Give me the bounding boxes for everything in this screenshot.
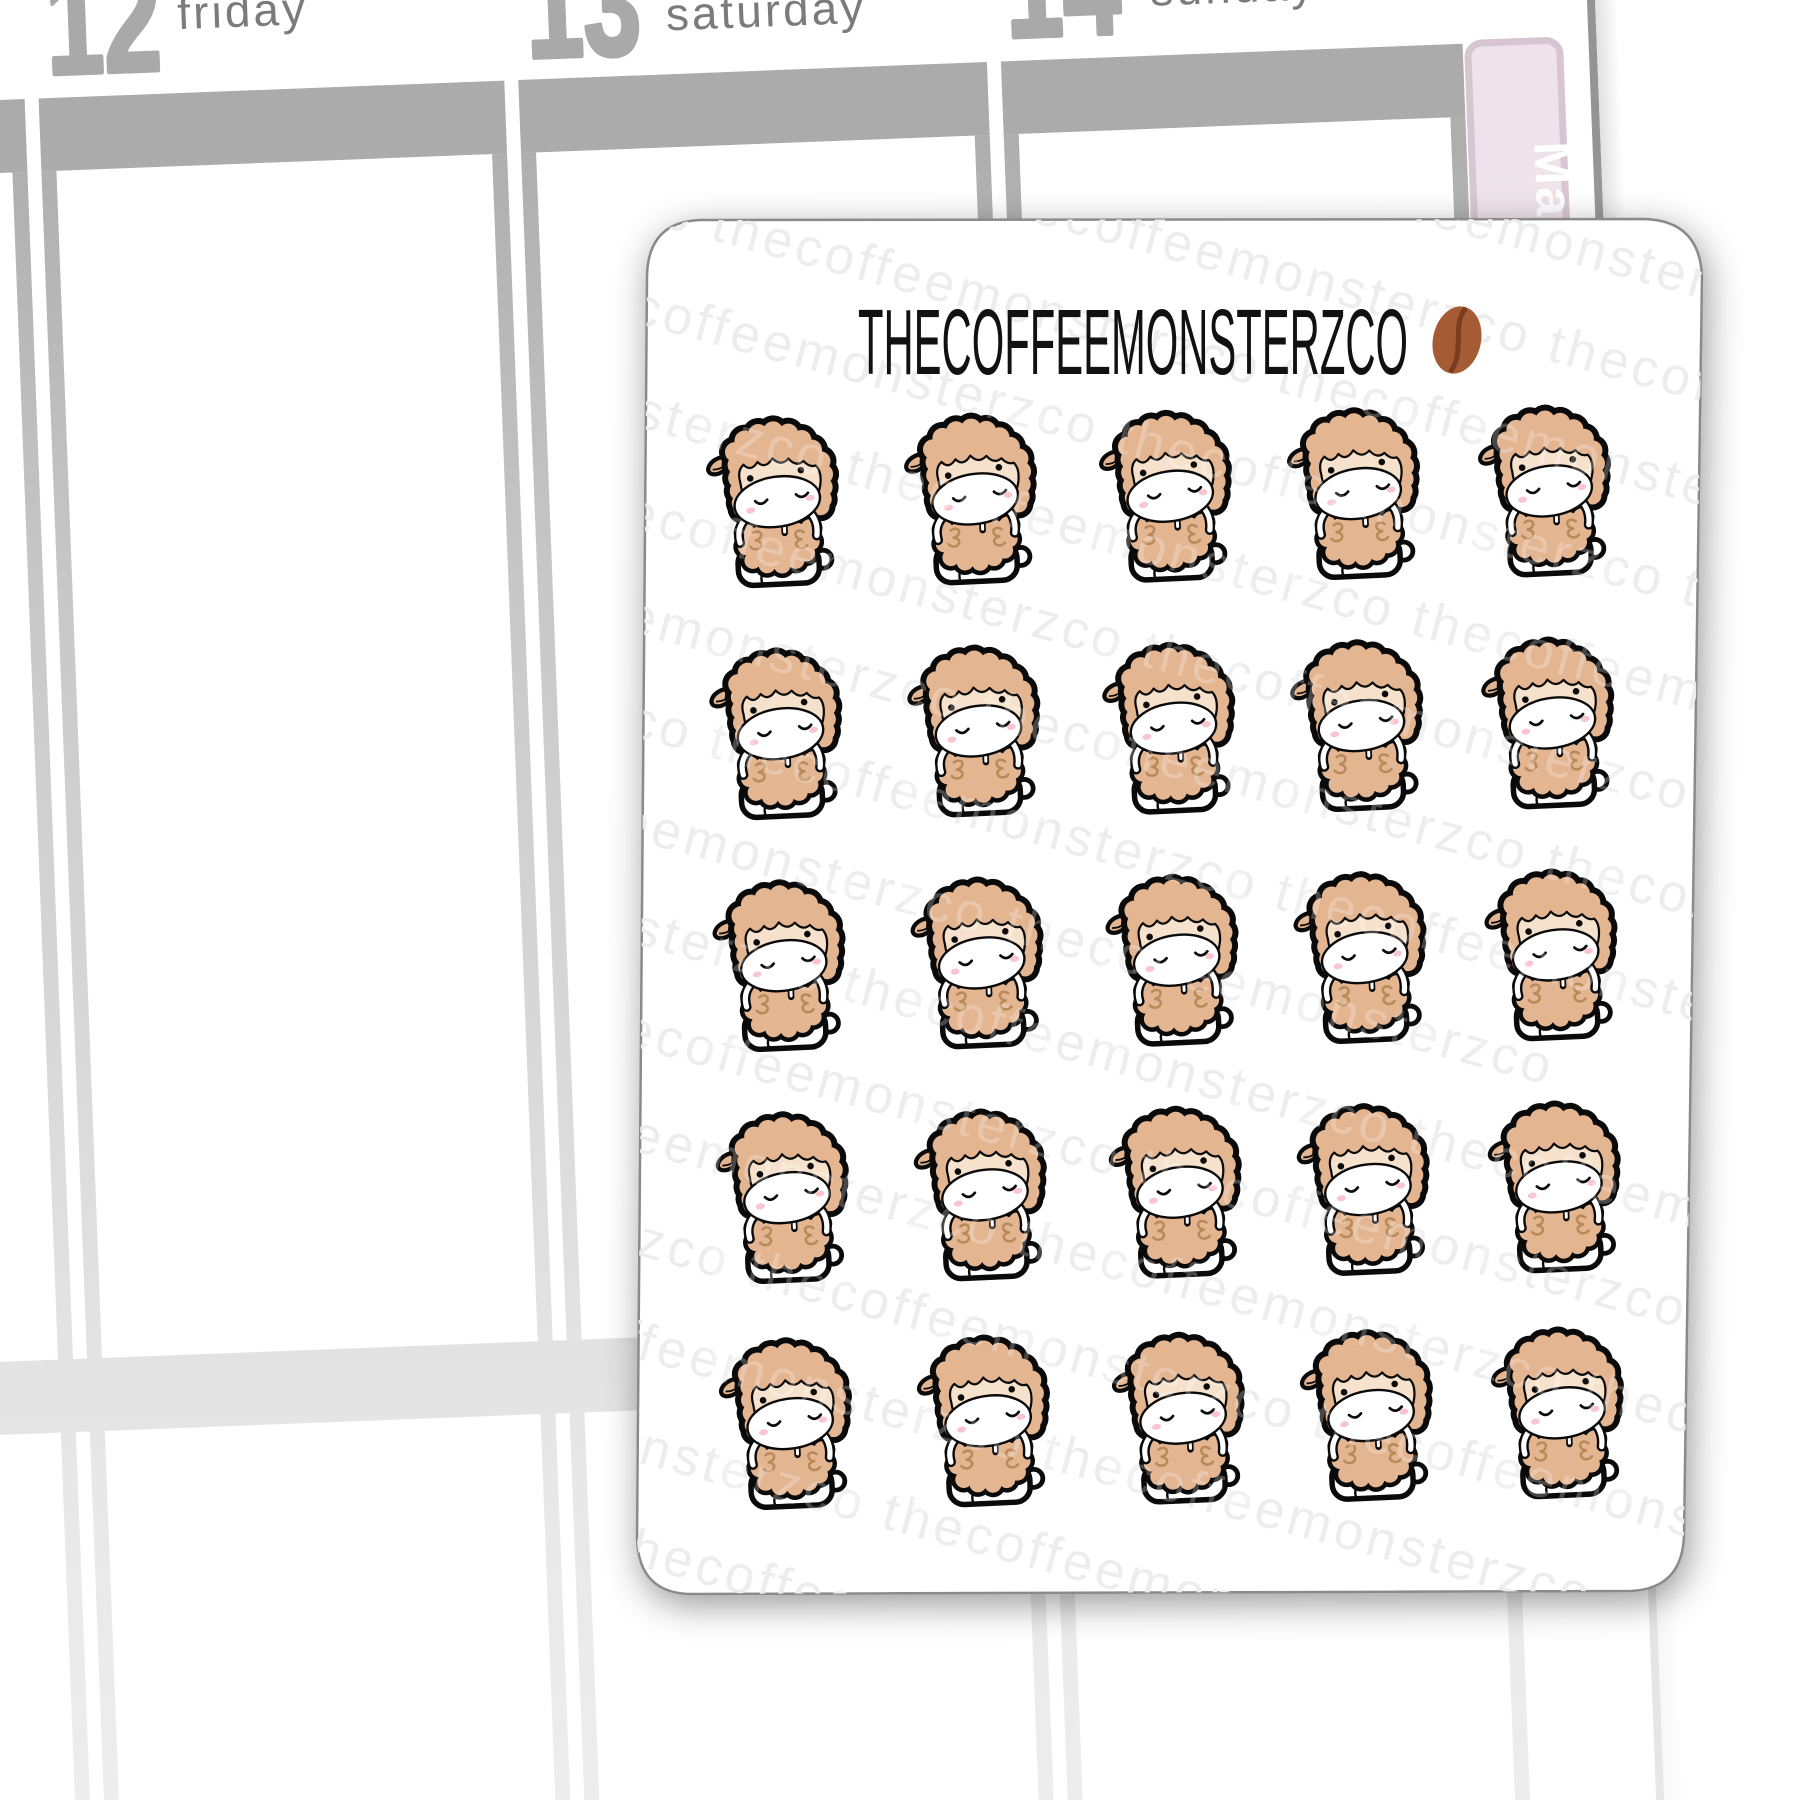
svg-text:THECOFFEEMONSTERZCO: THECOFFEEMONSTERZCO (858, 290, 1408, 394)
